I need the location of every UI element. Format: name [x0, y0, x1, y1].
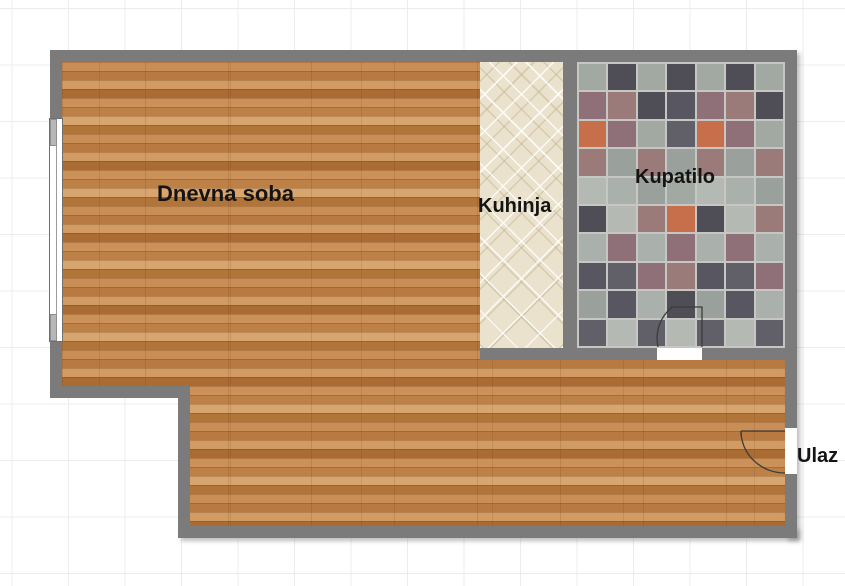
- bathroom-tile: [726, 121, 753, 147]
- bathroom-tile: [756, 206, 783, 232]
- bathroom-tile: [608, 92, 635, 118]
- bathroom-tile: [697, 263, 724, 289]
- bathroom-tile: [579, 234, 606, 260]
- bathroom-tile: [726, 92, 753, 118]
- bathroom-tile: [608, 206, 635, 232]
- bathroom-tile: [667, 121, 694, 147]
- wall-notch-horizontal: [50, 386, 190, 398]
- bathroom-tile: [667, 320, 694, 346]
- floorplan-canvas: Dnevna soba Kuhinja Kupatilo Ulaz: [0, 0, 845, 586]
- bathroom-tile: [697, 234, 724, 260]
- bathroom-tile: [667, 64, 694, 90]
- bathroom-tile: [608, 263, 635, 289]
- bathroom-tile: [667, 92, 694, 118]
- room-label-living-room: Dnevna soba: [157, 183, 294, 205]
- wall-top: [50, 50, 797, 62]
- window-sill-bottom: [50, 314, 57, 341]
- bathroom-tile: [608, 149, 635, 175]
- bathroom-tile: [638, 291, 665, 317]
- bathroom-tile: [638, 206, 665, 232]
- bathroom-tile: [608, 64, 635, 90]
- bathroom-tile: [756, 320, 783, 346]
- bathroom-tile: [697, 320, 724, 346]
- bathroom-tile: [756, 121, 783, 147]
- bathroom-tile: [608, 234, 635, 260]
- bathroom-tile: [697, 92, 724, 118]
- bathroom-tile: [726, 291, 753, 317]
- bathroom-tile: [697, 64, 724, 90]
- bathroom-floor: [577, 62, 785, 348]
- bathroom-tile: [726, 320, 753, 346]
- bathroom-tile: [638, 320, 665, 346]
- bathroom-tile: [726, 149, 753, 175]
- bathroom-tile: [756, 64, 783, 90]
- bathroom-tile: [579, 263, 606, 289]
- bathroom-tile: [579, 92, 606, 118]
- bathroom-tile: [756, 178, 783, 204]
- bathroom-tile: [667, 234, 694, 260]
- bathroom-tile: [756, 263, 783, 289]
- bathroom-tile: [608, 178, 635, 204]
- window-pane-line: [56, 119, 57, 341]
- bathroom-tile: [756, 92, 783, 118]
- entrance-door-opening: [785, 428, 797, 474]
- bathroom-tile: [638, 234, 665, 260]
- bathroom-tile: [579, 178, 606, 204]
- bathroom-tile: [579, 320, 606, 346]
- bathroom-tile: [726, 178, 753, 204]
- bathroom-tile: [579, 149, 606, 175]
- wall-bottom: [178, 526, 797, 538]
- bathroom-tile: [667, 263, 694, 289]
- exterior-notch: [50, 398, 178, 538]
- bathroom-tile: [697, 121, 724, 147]
- room-label-bathroom: Kupatilo: [635, 167, 715, 187]
- wall-hallway-divider: [480, 348, 785, 360]
- room-label-entrance: Ulaz: [797, 446, 838, 466]
- bathroom-tile: [756, 291, 783, 317]
- window-sill-top: [50, 119, 57, 146]
- bathroom-door-opening: [657, 348, 702, 360]
- bathroom-tile: [638, 263, 665, 289]
- bathroom-tile: [638, 92, 665, 118]
- bathroom-tile: [667, 206, 694, 232]
- bathroom-tile: [579, 206, 606, 232]
- bathroom-tile: [608, 121, 635, 147]
- bathroom-tile: [638, 64, 665, 90]
- bathroom-tile: [726, 263, 753, 289]
- wall-notch-vertical: [178, 386, 190, 538]
- bathroom-tile: [608, 291, 635, 317]
- bathroom-tile: [726, 64, 753, 90]
- bathroom-tile: [579, 121, 606, 147]
- wall-kitchen-bathroom-divider: [563, 62, 577, 360]
- window: [49, 118, 63, 342]
- bathroom-tile: [697, 291, 724, 317]
- bathroom-tile: [726, 234, 753, 260]
- bathroom-tile: [667, 291, 694, 317]
- bathroom-tile: [608, 320, 635, 346]
- bathroom-tile: [579, 291, 606, 317]
- room-label-kitchen: Kuhinja: [478, 196, 551, 216]
- bathroom-tile: [756, 234, 783, 260]
- bathroom-tile: [697, 206, 724, 232]
- bathroom-tile: [756, 149, 783, 175]
- bathroom-tile: [726, 206, 753, 232]
- bathroom-tile: [579, 64, 606, 90]
- bathroom-tile: [638, 121, 665, 147]
